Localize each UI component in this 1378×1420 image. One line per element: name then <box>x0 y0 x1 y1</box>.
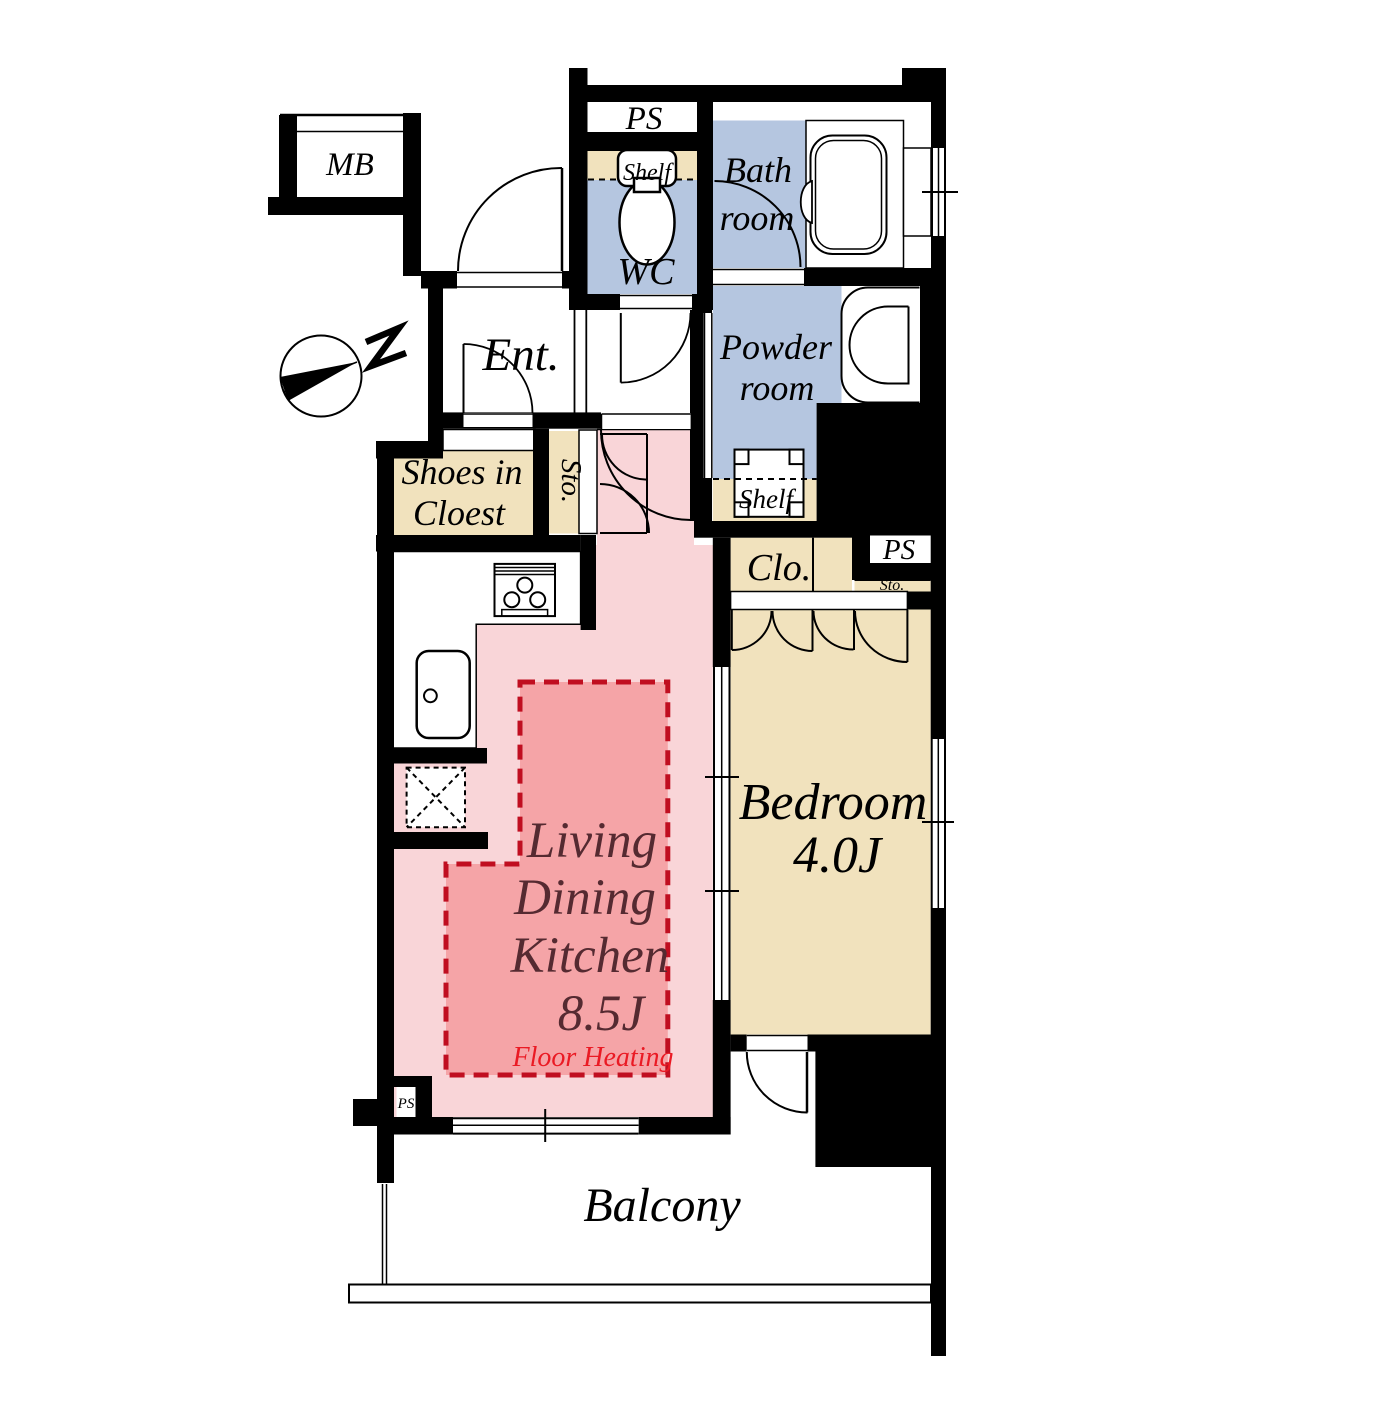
svg-text:Bedroom: Bedroom <box>739 774 928 831</box>
svg-text:8.5J: 8.5J <box>558 986 647 1042</box>
svg-text:Kitchen: Kitchen <box>510 928 670 984</box>
svg-text:Sto.: Sto. <box>555 459 587 503</box>
svg-text:MB: MB <box>325 147 374 183</box>
svg-text:WC: WC <box>618 251 676 293</box>
svg-text:Living: Living <box>526 813 657 869</box>
svg-text:room: room <box>720 198 795 238</box>
svg-text:Balcony: Balcony <box>583 1179 741 1232</box>
svg-text:PS: PS <box>625 101 663 137</box>
svg-text:Bath: Bath <box>724 150 792 190</box>
svg-text:PS: PS <box>882 534 916 566</box>
svg-text:PS: PS <box>397 1096 415 1112</box>
svg-text:Shelf: Shelf <box>739 484 796 514</box>
svg-text:Cloest: Cloest <box>413 493 506 533</box>
svg-text:room: room <box>740 368 815 408</box>
svg-text:Dining: Dining <box>513 870 656 926</box>
svg-text:Shoes in: Shoes in <box>402 452 523 492</box>
svg-text:4.0J: 4.0J <box>793 827 884 884</box>
svg-text:Floor Heating: Floor Heating <box>512 1042 674 1073</box>
svg-text:Powder: Powder <box>719 327 833 367</box>
svg-text:Clo.: Clo. <box>747 547 811 589</box>
svg-text:Shelf: Shelf <box>623 160 674 186</box>
